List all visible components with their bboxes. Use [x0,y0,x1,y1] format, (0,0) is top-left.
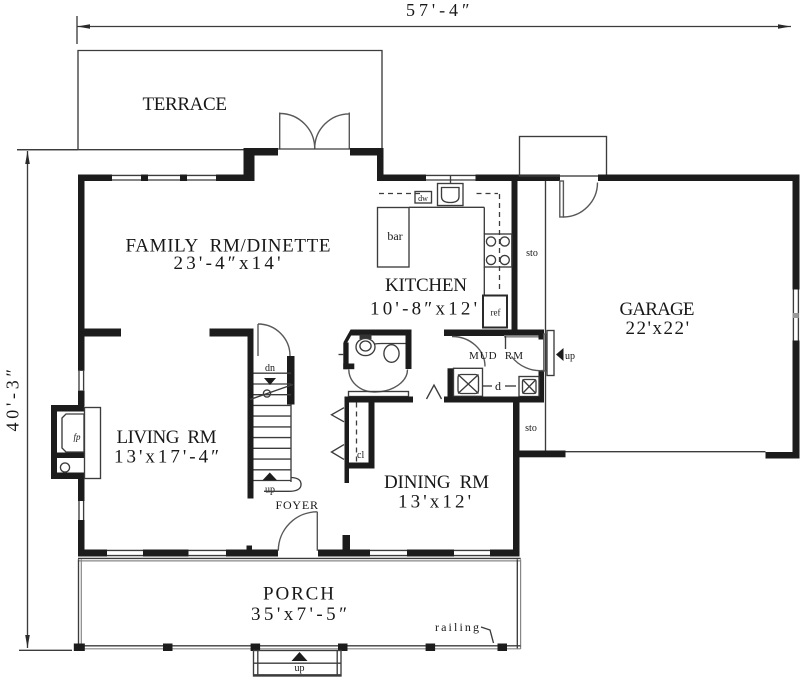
svg-text:sto: sto [526,248,538,259]
svg-text:bar: bar [387,229,402,243]
svg-text:up: up [265,485,275,496]
svg-text:35'x7'-5″: 35'x7'-5″ [251,604,348,625]
svg-text:LIVING RM: LIVING RM [117,427,218,448]
svg-text:TERRACE: TERRACE [143,94,229,115]
svg-text:DINING RM: DINING RM [384,472,490,493]
svg-text:23'-4″x14': 23'-4″x14' [174,253,282,274]
svg-text:cl: cl [357,450,364,461]
svg-text:fp: fp [73,432,81,442]
svg-text:PORCH: PORCH [263,584,335,605]
svg-text:dw: dw [418,194,428,203]
svg-text:13'x17'-4″: 13'x17'-4″ [114,447,220,468]
svg-text:sto: sto [525,423,537,434]
svg-text:22'x22': 22'x22' [626,318,691,339]
svg-text:railing: railing [435,620,479,634]
svg-text:40'-3″: 40'-3″ [3,368,23,432]
svg-text:up: up [565,351,575,362]
svg-text:dn: dn [265,363,275,374]
svg-text:FOYER: FOYER [276,498,319,512]
svg-text:KITCHEN: KITCHEN [385,275,468,296]
svg-text:GARAGE: GARAGE [620,299,696,320]
svg-text:d: d [495,379,501,393]
svg-text:up: up [295,663,305,674]
svg-text:57'-4″: 57'-4″ [406,0,471,20]
svg-text:10'-8″x12': 10'-8″x12' [370,299,478,320]
svg-text:ref: ref [491,308,501,318]
